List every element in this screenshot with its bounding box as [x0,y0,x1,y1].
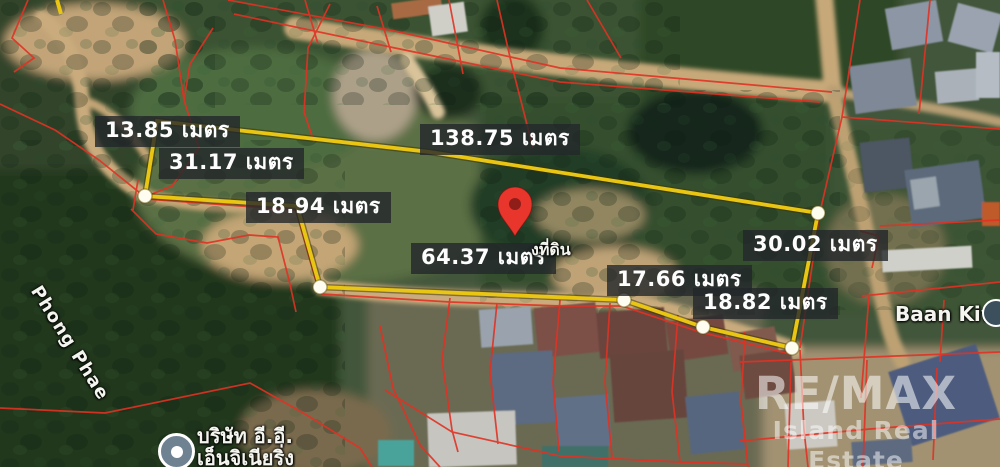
satellite-map[interactable]: 13.85 เมตร 31.17 เมตร 138.75 เมตร 18.94 … [0,0,1000,467]
company-label-line1: บริษัท อี.อี. [197,425,294,447]
company-poi-dot [171,446,183,458]
land-text-partial: งที่ดิน [531,238,571,263]
measurement-label-east: 30.02 เมตร [743,230,888,261]
measurement-label-southeast-2: 18.82 เมตร [693,288,838,319]
company-label: บริษัท อี.อี. เอ็นจิเนียริ่ง [197,425,294,467]
measurement-label-north: 138.75 เมตร [420,124,580,155]
measurement-label-west: 13.85 เมตร [95,116,240,147]
company-poi-icon [158,433,195,467]
company-label-line2: เอ็นจิเนียริ่ง [197,447,294,467]
measurement-label-west-inner: 18.94 เมตร [246,192,391,223]
measurement-label-northwest: 31.17 เมตร [159,148,304,179]
